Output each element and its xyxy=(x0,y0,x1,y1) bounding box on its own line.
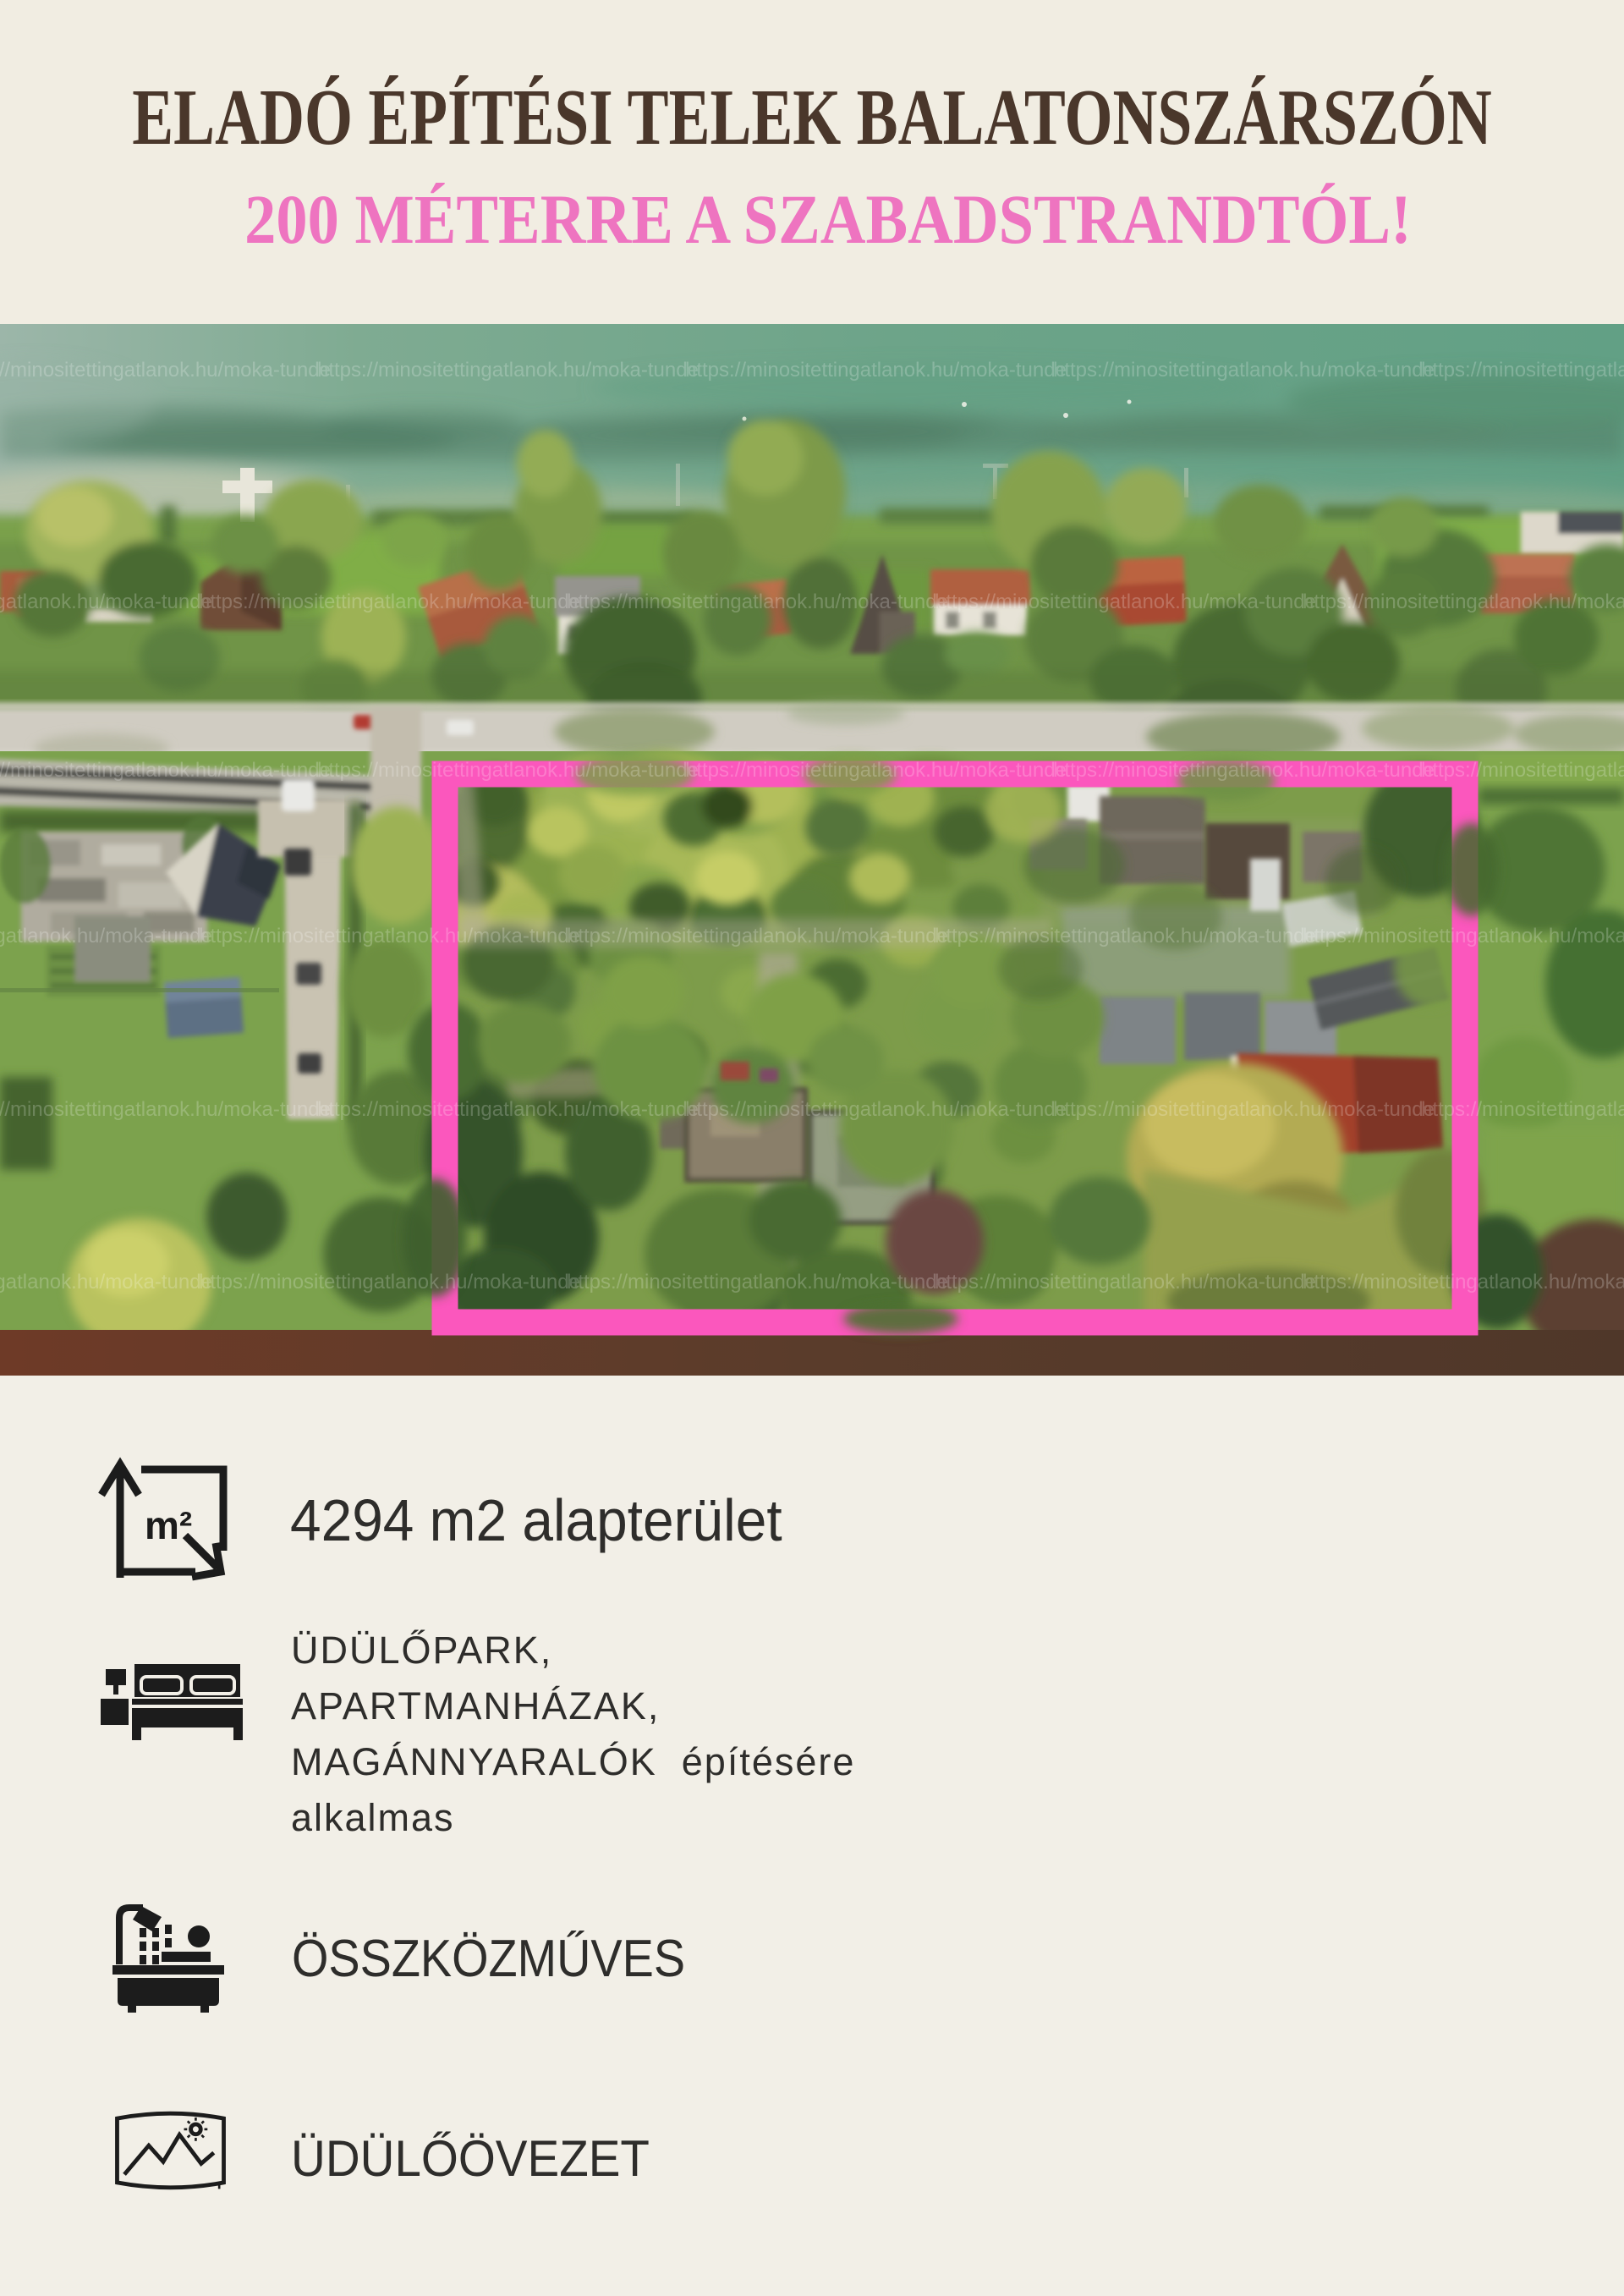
svg-text:https://minositettingatlanok.h: https://minositettingatlanok.hu/moka-tun… xyxy=(199,590,580,613)
svg-text:https://minositettingatlanok.h: https://minositettingatlanok.hu/moka-tun… xyxy=(935,590,1316,613)
svg-text:https://minositettingatlanok.h: https://minositettingatlanok.hu/moka-tun… xyxy=(1421,1098,1624,1121)
svg-text:https://minositettingatlanok.h: https://minositettingatlanok.hu/moka-tun… xyxy=(317,759,699,782)
svg-text:https://minositettingatlanok.h: https://minositettingatlanok.hu/moka-tun… xyxy=(685,759,1067,782)
svg-text:https://minositettingatlanok.h: https://minositettingatlanok.hu/moka-tun… xyxy=(199,1271,580,1294)
svg-text:https://minositettingatlanok.h: https://minositettingatlanok.hu/moka-tun… xyxy=(1053,1098,1435,1121)
svg-text:https://minositettingatlanok.h: https://minositettingatlanok.hu/moka-tun… xyxy=(0,759,331,782)
svg-text:https://minositettingatlanok.h: https://minositettingatlanok.hu/moka-tun… xyxy=(317,1098,699,1121)
svg-text:https://minositettingatlanok.h: https://minositettingatlanok.hu/moka-tun… xyxy=(685,359,1067,382)
svg-text:https://minositettingatlanok.h: https://minositettingatlanok.hu/moka-tun… xyxy=(567,925,948,948)
svg-text:https://minositettingatlanok.h: https://minositettingatlanok.hu/moka-tun… xyxy=(1053,759,1435,782)
svg-text:https://minositettingatlanok.h: https://minositettingatlanok.hu/moka-tun… xyxy=(0,590,212,613)
svg-text:https://minositettingatlanok.h: https://minositettingatlanok.hu/moka-tun… xyxy=(199,925,580,948)
svg-text:https://minositettingatlanok.h: https://minositettingatlanok.hu/moka-tun… xyxy=(567,1271,948,1294)
svg-text:https://minositettingatlanok.h: https://minositettingatlanok.hu/moka-tun… xyxy=(1421,759,1624,782)
svg-text:https://minositettingatlanok.h: https://minositettingatlanok.hu/moka-tun… xyxy=(1303,590,1624,613)
svg-text:https://minositettingatlanok.h: https://minositettingatlanok.hu/moka-tun… xyxy=(1421,359,1624,382)
svg-text:https://minositettingatlanok.h: https://minositettingatlanok.hu/moka-tun… xyxy=(685,1098,1067,1121)
svg-text:https://minositettingatlanok.h: https://minositettingatlanok.hu/moka-tun… xyxy=(0,1271,212,1294)
svg-text:https://minositettingatlanok.h: https://minositettingatlanok.hu/moka-tun… xyxy=(1303,925,1624,948)
svg-text:https://minositettingatlanok.h: https://minositettingatlanok.hu/moka-tun… xyxy=(0,1098,331,1121)
svg-text:https://minositettingatlanok.h: https://minositettingatlanok.hu/moka-tun… xyxy=(1053,359,1435,382)
svg-text:https://minositettingatlanok.h: https://minositettingatlanok.hu/moka-tun… xyxy=(1303,1271,1624,1294)
svg-text:m²: m² xyxy=(145,1503,192,1547)
svg-text:https://minositettingatlanok.h: https://minositettingatlanok.hu/moka-tun… xyxy=(935,1271,1316,1294)
svg-text:https://minositettingatlanok.h: https://minositettingatlanok.hu/moka-tun… xyxy=(0,925,212,948)
svg-text:https://minositettingatlanok.h: https://minositettingatlanok.hu/moka-tun… xyxy=(567,590,948,613)
svg-text:https://minositettingatlanok.h: https://minositettingatlanok.hu/moka-tun… xyxy=(0,359,331,382)
svg-text:https://minositettingatlanok.h: https://minositettingatlanok.hu/moka-tun… xyxy=(935,925,1316,948)
svg-text:https://minositettingatlanok.h: https://minositettingatlanok.hu/moka-tun… xyxy=(317,359,699,382)
